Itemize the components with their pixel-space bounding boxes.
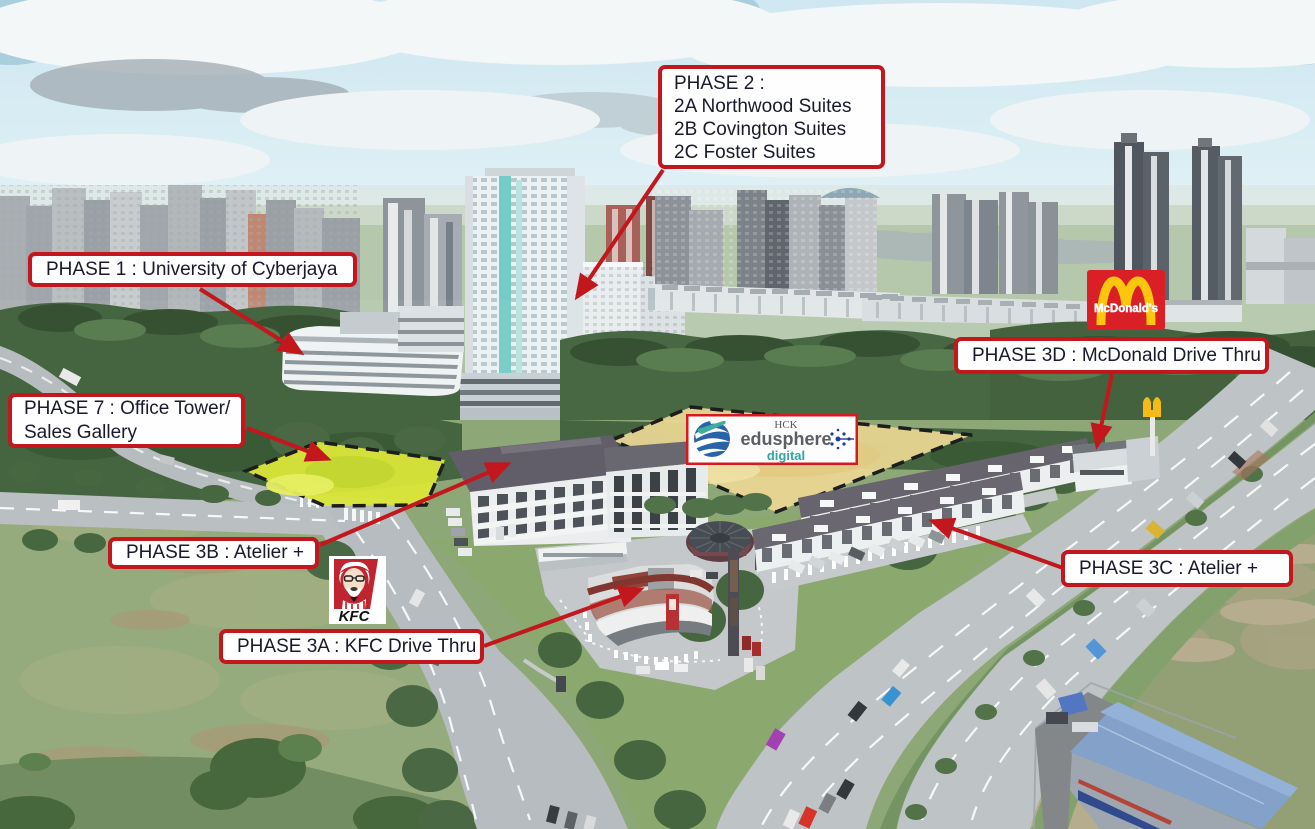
svg-text:McDonald's: McDonald's [1094, 303, 1158, 315]
svg-text:KFC: KFC [339, 608, 371, 624]
svg-text:edusphere: edusphere [740, 429, 831, 449]
svg-text:digital: digital [767, 448, 805, 463]
